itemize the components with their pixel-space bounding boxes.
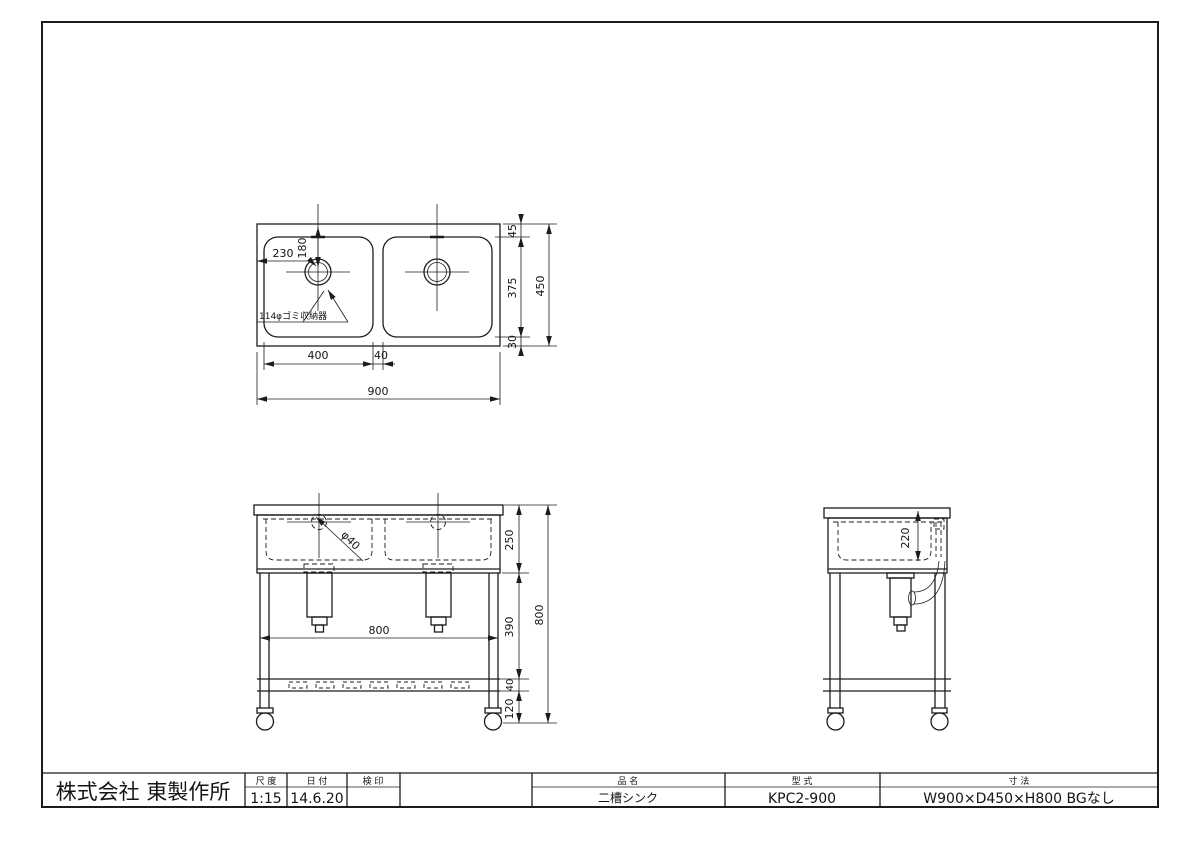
svg-text:230: 230	[273, 247, 294, 260]
front-top-rim	[254, 505, 503, 515]
plan-right-dims: 45 375 30 450	[495, 215, 557, 355]
size-value: W900×D450×H800 BGなし	[923, 791, 1114, 807]
side-legs	[823, 573, 951, 708]
date-label: 日 付	[307, 776, 328, 787]
front-lower-shelf	[257, 679, 500, 691]
stamp-label: 検 印	[363, 775, 384, 787]
svg-text:180: 180	[296, 238, 309, 259]
svg-text:800: 800	[533, 605, 546, 626]
date-value: 14.6.20	[290, 791, 343, 807]
svg-text:114φゴミ収納器: 114φゴミ収納器	[259, 310, 327, 322]
side-casters	[827, 708, 948, 730]
svg-text:220: 220	[899, 528, 912, 549]
front-sink-body	[257, 515, 500, 573]
svg-text:400: 400	[308, 349, 329, 362]
sheet-border	[42, 22, 1158, 807]
title-block: 株式会社 東製作所 尺 度 1:15 日 付 14.6.20 検 印 品 名 二…	[42, 773, 1158, 807]
side-sink-body	[828, 518, 947, 573]
front-right-drain	[426, 573, 451, 632]
drawing-sheet: 230 180 114φゴミ収納器 45 375	[0, 0, 1200, 849]
plan-right-basin	[383, 237, 492, 337]
technical-drawing: 230 180 114φゴミ収納器 45 375	[0, 0, 1200, 849]
side-overflow-pipe	[909, 561, 946, 605]
svg-text:120: 120	[503, 699, 516, 720]
svg-text:30: 30	[506, 335, 519, 349]
model-label: 型 式	[792, 775, 813, 787]
plan-bottom-dims: 400 40 900	[257, 342, 500, 405]
plan-view: 230 180 114φゴミ収納器 45 375	[257, 204, 557, 405]
product-name-label: 品 名	[618, 775, 639, 787]
svg-text:40: 40	[505, 679, 516, 692]
svg-text:40: 40	[374, 349, 388, 362]
product-name-value: 二槽シンク	[598, 791, 658, 805]
size-label: 寸 法	[1009, 775, 1030, 787]
front-left-drain	[307, 573, 332, 632]
scale-label: 尺 度	[256, 775, 277, 787]
side-view: 220	[823, 508, 951, 730]
svg-text:900: 900	[368, 385, 389, 398]
svg-text:450: 450	[534, 276, 547, 297]
scale-value: 1:15	[250, 791, 281, 807]
dim-leg-span: 800	[260, 624, 498, 638]
side-hidden-lines	[833, 519, 944, 560]
front-view: φ40	[254, 493, 557, 730]
svg-text:250: 250	[503, 530, 516, 551]
front-hidden-basins	[263, 519, 494, 572]
front-casters	[257, 708, 502, 730]
svg-text:45: 45	[506, 224, 519, 238]
svg-text:375: 375	[506, 278, 519, 299]
garbage-container-note: 114φゴミ収納器	[257, 290, 348, 322]
svg-text:φ40: φ40	[338, 528, 362, 552]
side-top-rim	[824, 508, 950, 518]
front-right-dims: 250 390 40 120 800	[500, 505, 557, 723]
dim-drain-diameter: φ40	[316, 517, 363, 561]
plan-centerlines	[286, 204, 469, 311]
front-drain-centerlines	[287, 493, 470, 558]
svg-text:390: 390	[503, 617, 516, 638]
svg-text:800: 800	[369, 624, 390, 637]
side-drain	[887, 573, 914, 631]
model-value: KPC2-900	[768, 791, 836, 807]
plan-top-board	[257, 224, 500, 346]
company-name: 株式会社 東製作所	[56, 780, 231, 804]
